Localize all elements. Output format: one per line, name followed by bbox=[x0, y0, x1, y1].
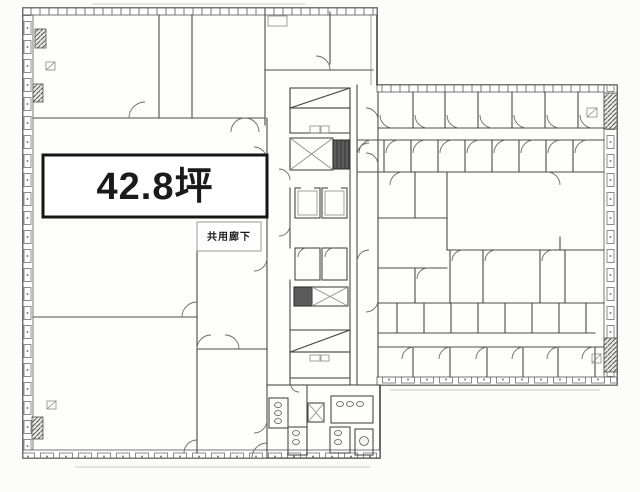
window-band-top-right bbox=[377, 85, 617, 92]
window-band-top-left bbox=[23, 8, 377, 15]
service-shaft-icon bbox=[333, 140, 349, 169]
area-label-box: 42.8坪 bbox=[43, 155, 267, 217]
corridor-label: 共用廊下 bbox=[207, 230, 251, 243]
pilaster-icon bbox=[33, 84, 43, 102]
window-band-bottom-right bbox=[377, 377, 617, 385]
area-label: 42.8坪 bbox=[97, 166, 214, 208]
sink-icon bbox=[360, 437, 369, 446]
floor-plan-drawing: 42.8坪 共用廊下 bbox=[0, 0, 640, 492]
floor-plan: 42.8坪 共用廊下 bbox=[0, 0, 640, 492]
pilaster-icon bbox=[604, 93, 617, 129]
pilaster-icon bbox=[35, 29, 46, 48]
corridor-label-box: 共用廊下 bbox=[197, 222, 261, 251]
pilaster-icon bbox=[604, 338, 617, 372]
window-band-bottom-left bbox=[23, 450, 380, 458]
service-shaft-icon bbox=[294, 287, 312, 306]
window-band-left bbox=[23, 15, 33, 455]
pilaster-icon bbox=[32, 417, 43, 439]
